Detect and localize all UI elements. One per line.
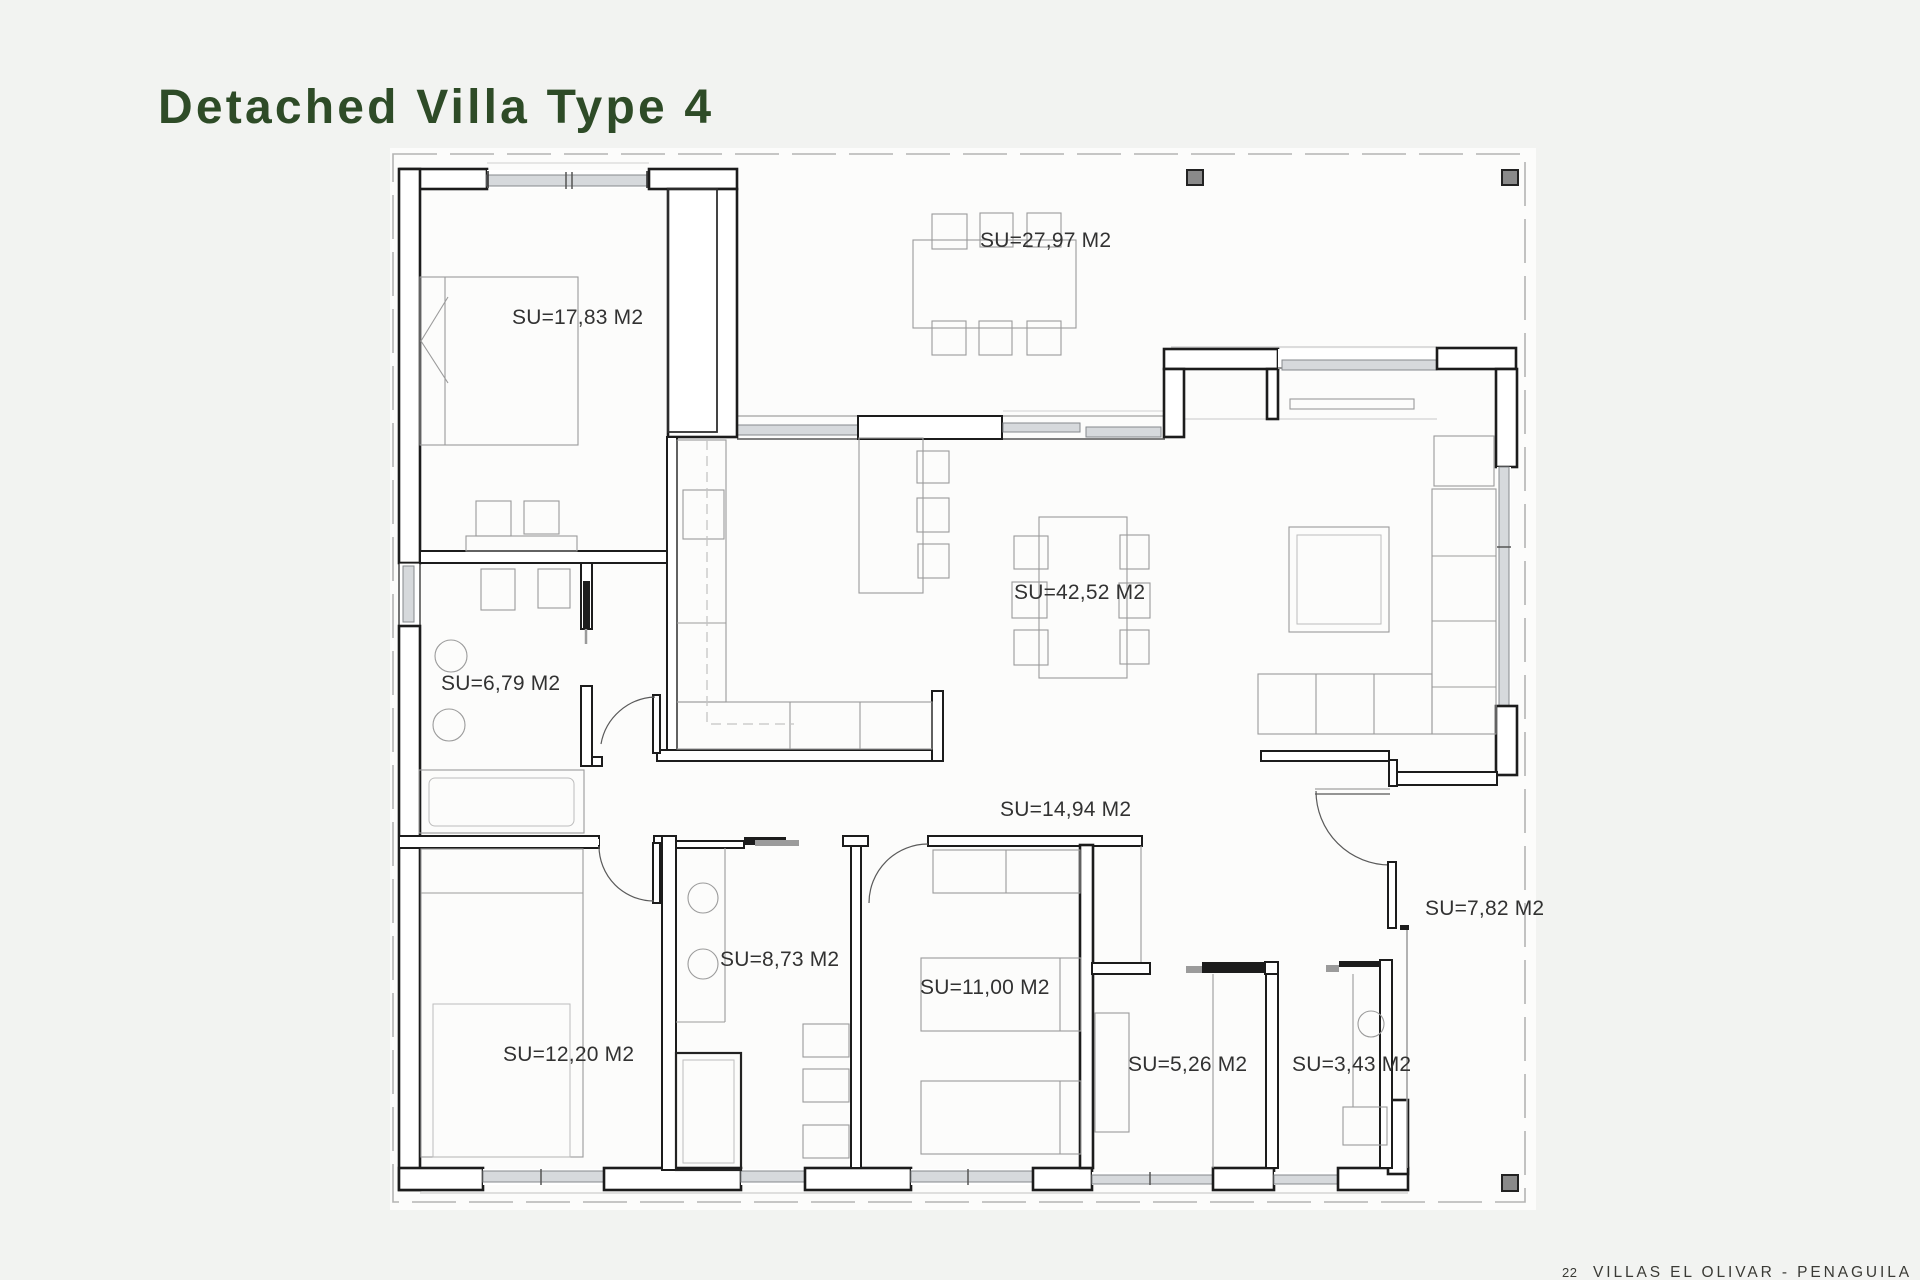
svg-text:VILLAS EL OLIVAR - PENAGUILA: VILLAS EL OLIVAR - PENAGUILA [1593,1264,1912,1280]
svg-text:SU=3,43 M2: SU=3,43 M2 [1292,1053,1411,1076]
svg-text:SU=11,00 M2: SU=11,00 M2 [920,976,1050,999]
svg-text:SU=5,26 M2: SU=5,26 M2 [1128,1053,1247,1076]
svg-text:SU=14,94 M2: SU=14,94 M2 [1000,798,1131,821]
svg-text:SU=6,79 M2: SU=6,79 M2 [441,672,560,695]
svg-text:Detached Villa Type 4: Detached Villa Type 4 [158,81,714,134]
svg-text:22: 22 [1562,1265,1577,1280]
svg-text:SU=7,82 M2: SU=7,82 M2 [1425,897,1544,920]
svg-text:SU=17,83 M2: SU=17,83 M2 [512,306,643,329]
svg-text:SU=27,97 M2: SU=27,97 M2 [980,229,1111,252]
svg-text:SU=42,52 M2: SU=42,52 M2 [1014,581,1145,604]
svg-text:SU=12,20 M2: SU=12,20 M2 [503,1043,634,1066]
svg-text:SU=8,73 M2: SU=8,73 M2 [720,948,839,971]
